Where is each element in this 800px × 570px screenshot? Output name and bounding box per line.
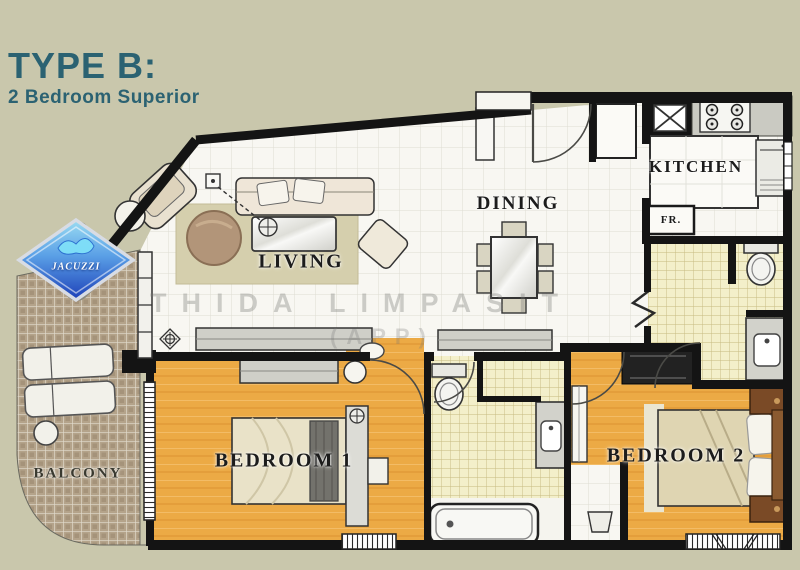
toilet1-icon	[432, 364, 466, 410]
bathtub-icon	[430, 504, 538, 544]
console-cabinet	[438, 330, 552, 350]
stool2	[588, 512, 612, 532]
balcony-label: BALCONY	[33, 466, 122, 483]
corridor-cabinet	[572, 386, 587, 462]
plan-subtitle: 2 Bedroom Superior	[8, 88, 200, 107]
balcony-table	[34, 421, 58, 445]
fridge-label: FR.	[661, 214, 681, 226]
bedroom1-label: BEDROOM 1	[215, 450, 354, 473]
floorplan-page: TYPE B: 2 Bedroom Superior LIVING DINING…	[0, 0, 800, 570]
dining-room-label: DINING	[477, 193, 560, 215]
ottoman-pouf	[187, 211, 241, 265]
bedroom2-window	[686, 534, 780, 549]
plan-title-block: TYPE B: 2 Bedroom Superior	[8, 48, 200, 107]
wardrobe2	[622, 350, 694, 384]
kitchen-side-window	[784, 142, 792, 190]
living-room-label: LIVING	[258, 251, 343, 274]
sofa	[236, 178, 374, 215]
bedroom1-window	[342, 534, 396, 549]
jacuzzi-badge-label: JACUZZI	[52, 262, 101, 273]
plan-title: TYPE B:	[8, 48, 200, 84]
living-west-wall-window	[138, 252, 152, 358]
dresser1	[240, 360, 338, 383]
bedroom2-label: BEDROOM 2	[607, 445, 746, 468]
kitchen-sink-icon	[648, 100, 692, 136]
sideboard-cabinet	[196, 328, 372, 350]
bedroom1-side-window	[144, 382, 155, 520]
fan-symbol1	[350, 409, 364, 423]
vanity1-sink-icon	[536, 402, 566, 468]
toilet2-icon	[744, 240, 778, 285]
nightstand1	[368, 458, 388, 484]
entry-alcove	[476, 92, 531, 110]
kitchen-label: KITCHEN	[649, 157, 743, 177]
side-table1	[344, 361, 366, 383]
entry-closet	[596, 104, 636, 158]
